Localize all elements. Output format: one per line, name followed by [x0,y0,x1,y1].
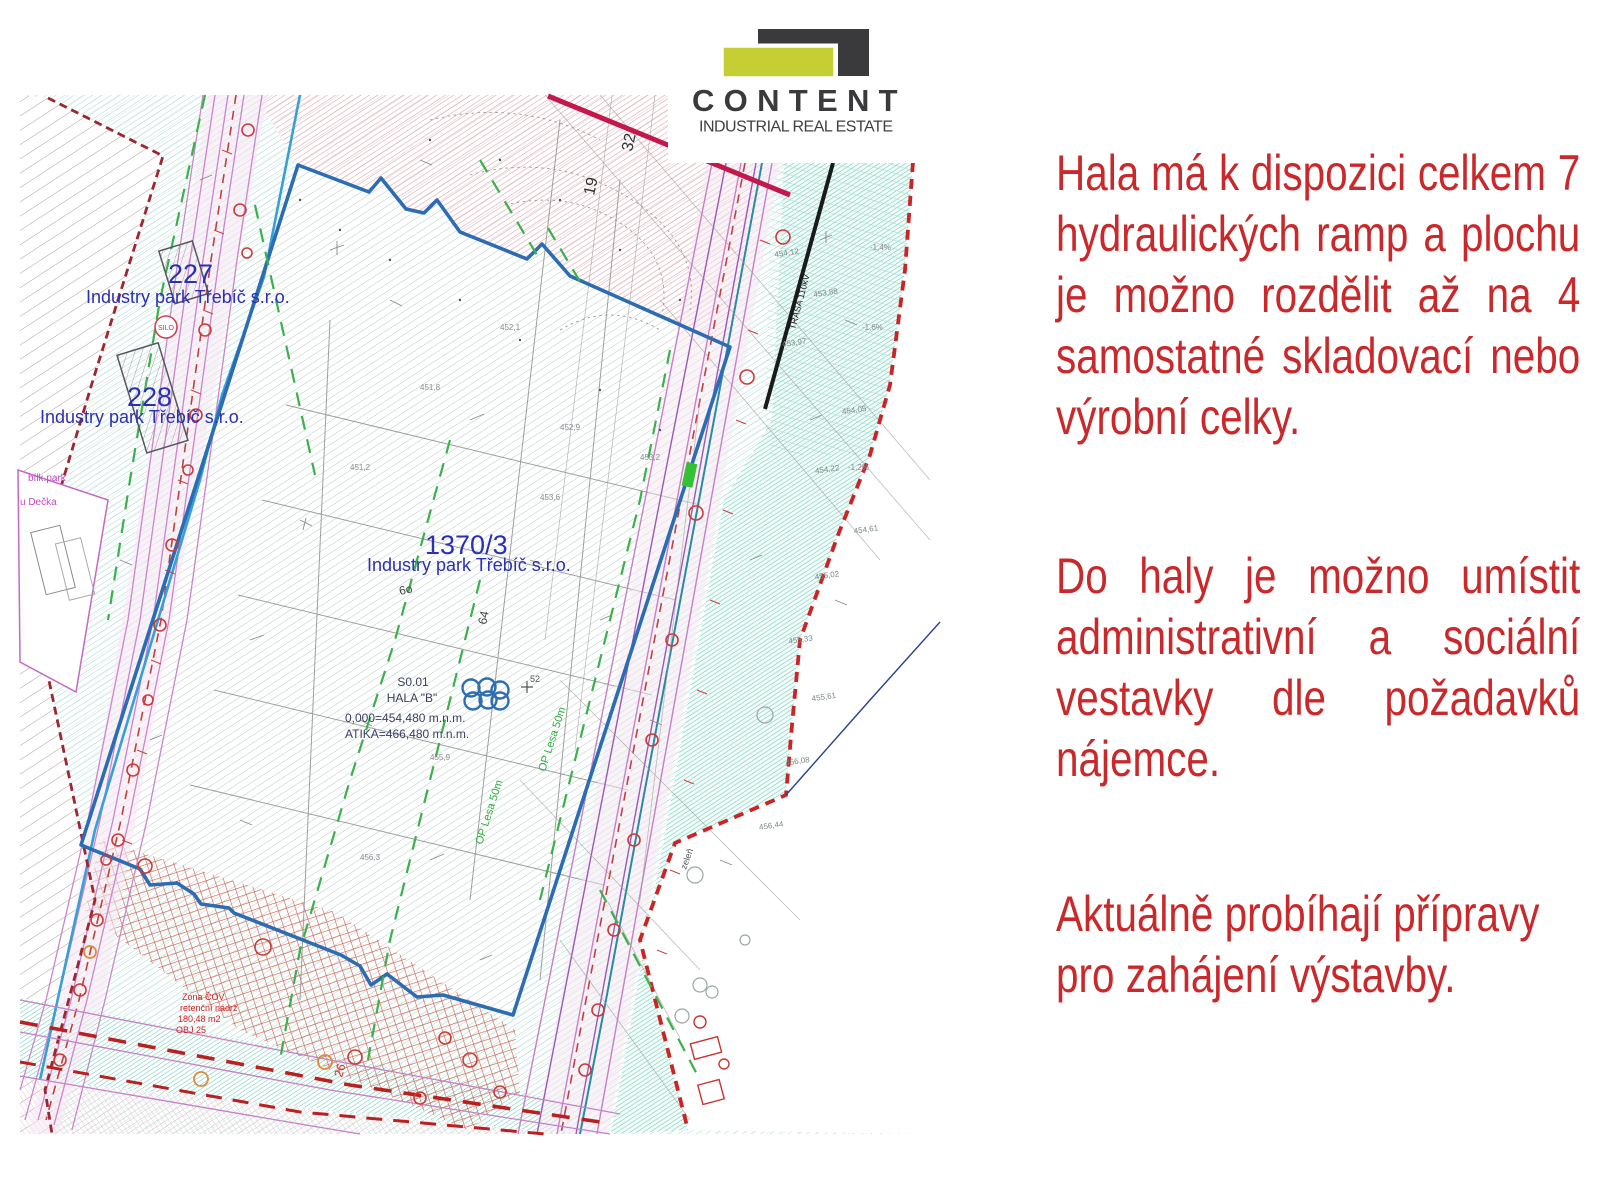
svg-text:Zóna ČOV: Zóna ČOV [182,992,225,1002]
svg-text:452,9: 452,9 [560,423,581,432]
svg-text:ATIKA=466,480 m.n.m.: ATIKA=466,480 m.n.m. [345,727,469,741]
svg-text:455,9: 455,9 [430,753,451,762]
svg-text:451,2: 451,2 [350,463,371,472]
svg-text:S0.01: S0.01 [397,675,429,689]
svg-text:-1,2%: -1,2% [848,463,869,472]
svg-text:-1,4%: -1,4% [870,243,891,252]
svg-text:bílk.park: bílk.park [28,473,67,484]
svg-text:Industry park Třebíč s.r.o.: Industry park Třebíč s.r.o. [367,555,571,575]
svg-text:451,8: 451,8 [420,383,441,392]
svg-text:0,000=454,480 m.n.m.: 0,000=454,480 m.n.m. [345,711,465,725]
svg-text:retenční nádrž: retenční nádrž [180,1003,238,1013]
svg-text:Industry park Třebíč s.r.o.: Industry park Třebíč s.r.o. [86,287,290,307]
svg-text:CONTENT: CONTENT [692,83,907,118]
svg-text:453,6: 453,6 [540,493,561,502]
svg-text:-1,6%: -1,6% [862,323,883,332]
svg-text:453,2: 453,2 [640,453,661,462]
svg-text:52: 52 [530,674,540,684]
svg-text:INDUSTRIAL REAL ESTATE: INDUSTRIAL REAL ESTATE [699,119,892,136]
svg-text:180,48 m2: 180,48 m2 [178,1014,221,1024]
svg-text:OBJ 25: OBJ 25 [176,1025,206,1035]
svg-text:19: 19 [581,176,601,197]
svg-text:u Dečka: u Dečka [20,497,57,508]
svg-text:HALA "B": HALA "B" [387,691,438,705]
svg-text:227: 227 [168,259,213,289]
svg-text:SILO: SILO [158,325,175,332]
svg-text:Industry park Třebíč s.r.o.: Industry park Třebíč s.r.o. [40,407,244,427]
svg-text:32: 32 [619,132,639,153]
svg-text:452,1: 452,1 [500,323,521,332]
svg-text:456,3: 456,3 [360,853,381,862]
